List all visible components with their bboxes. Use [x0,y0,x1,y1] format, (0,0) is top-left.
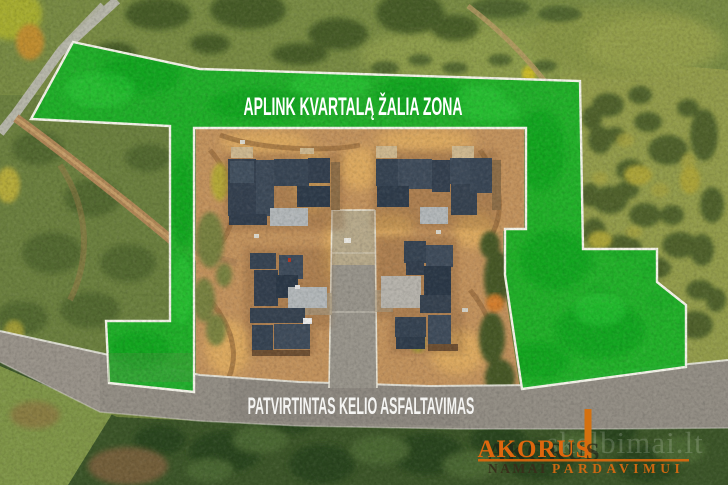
svg-text:APLINK KVARTALĄ ŽALIA ZONA: APLINK KVARTALĄ ŽALIA ZONA [244,92,463,122]
svg-text:PATVIRTINTAS KELIO ASFALTAVIMA: PATVIRTINTAS KELIO ASFALTAVIMAS [248,394,475,420]
svg-text:PARDAVIMUI: PARDAVIMUI [552,461,684,476]
svg-text:AKORUS: AKORUS [478,436,591,463]
svg-text:NAMAI: NAMAI [488,461,548,476]
